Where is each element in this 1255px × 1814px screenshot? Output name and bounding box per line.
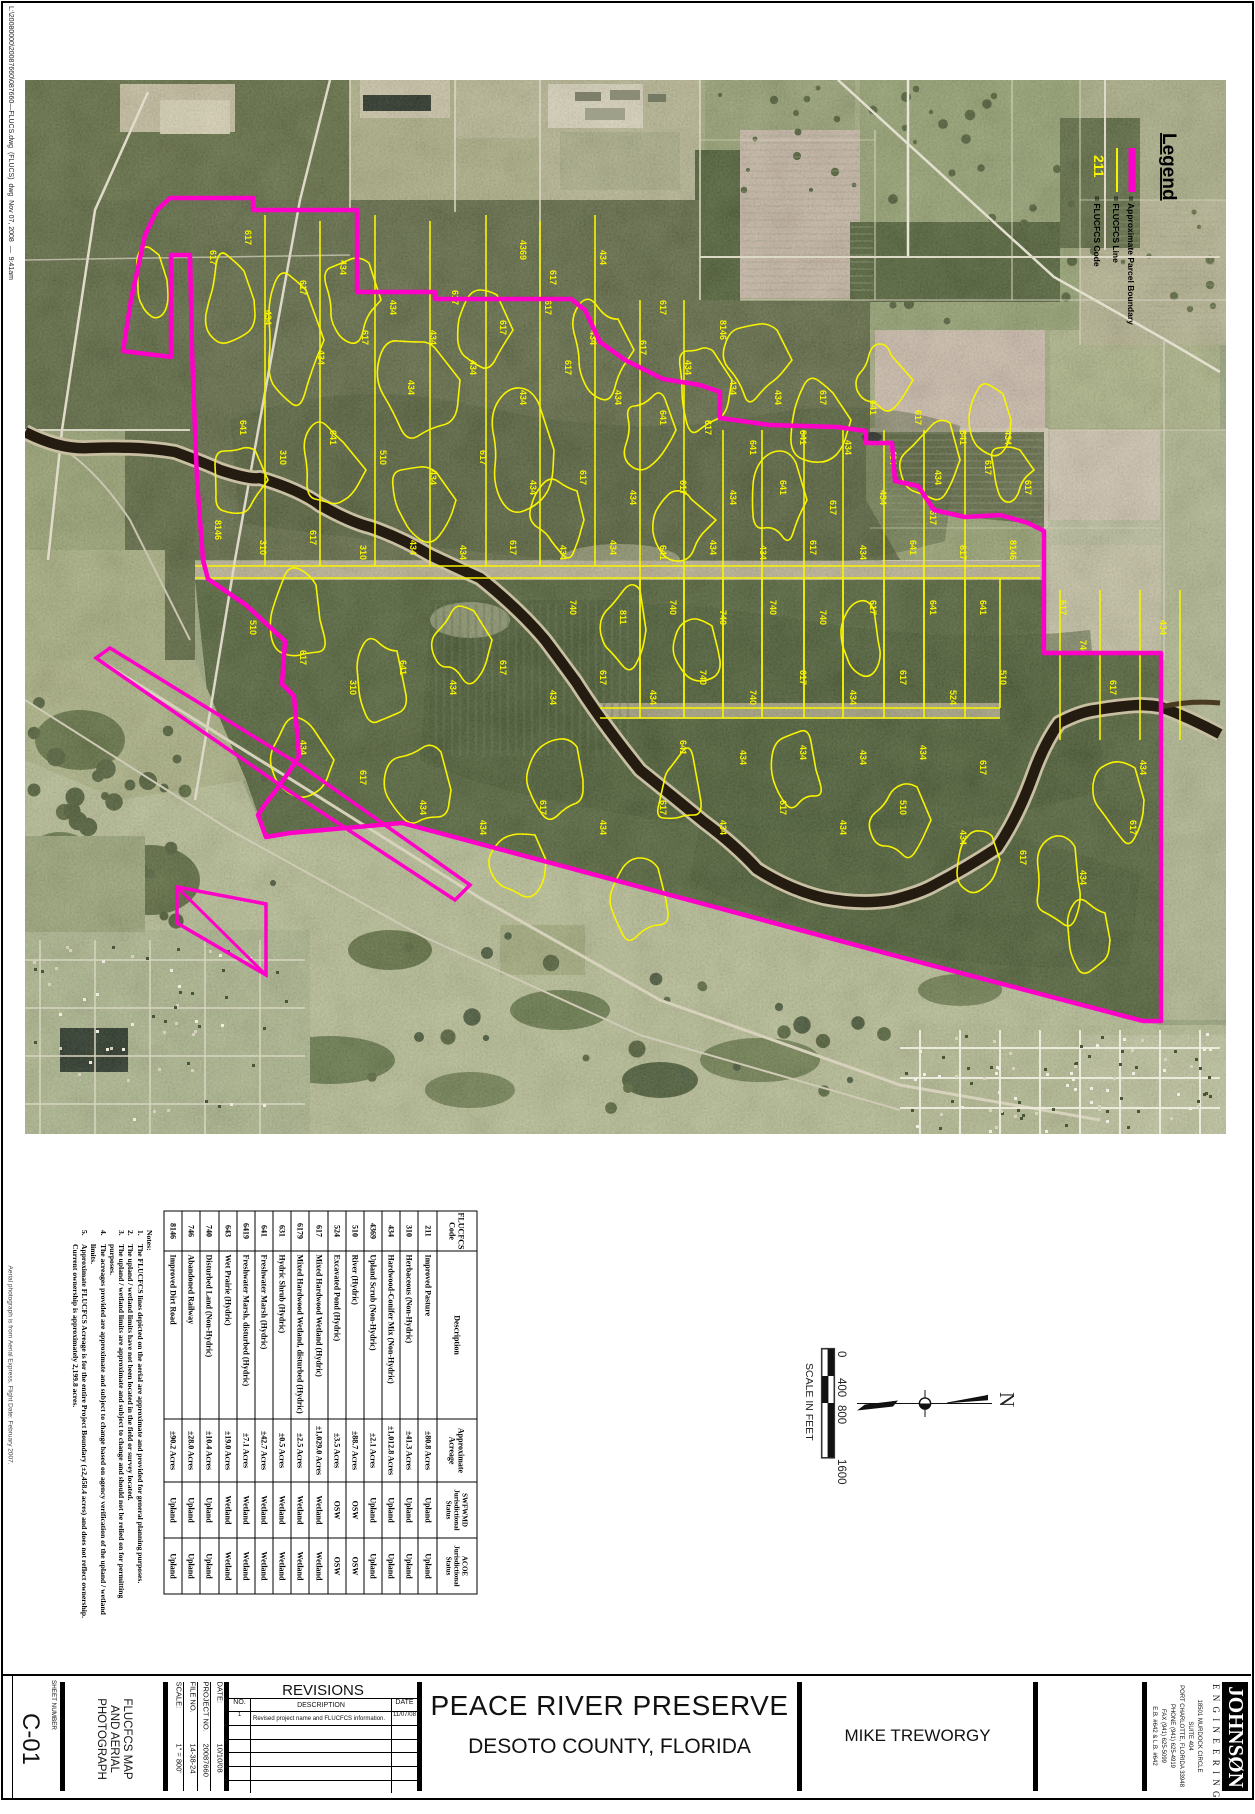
svg-text:617: 617 [298, 280, 308, 295]
svg-text:434: 434 [958, 830, 968, 845]
svg-text:617: 617 [958, 545, 968, 560]
svg-text:434: 434 [548, 690, 558, 705]
svg-text:434: 434 [1138, 760, 1148, 775]
svg-text:310: 310 [348, 680, 358, 695]
svg-text:617: 617 [360, 330, 370, 345]
svg-text:617: 617 [808, 540, 818, 555]
svg-text:524: 524 [948, 690, 958, 705]
svg-text:617: 617 [243, 230, 253, 245]
svg-text:N: N [995, 1392, 1019, 1407]
svg-text:617: 617 [1058, 600, 1068, 615]
svg-text:434: 434 [738, 750, 748, 765]
svg-text:434: 434 [418, 800, 428, 815]
svg-text:434: 434 [338, 260, 348, 275]
svg-text:617: 617 [1023, 480, 1033, 495]
svg-text:617: 617 [1108, 680, 1118, 695]
svg-text:434: 434 [1158, 620, 1168, 635]
svg-text:434: 434 [758, 545, 768, 560]
svg-text:434: 434 [628, 490, 638, 505]
svg-text:617: 617 [1018, 850, 1028, 865]
svg-text:= FLUCFCS Code: = FLUCFCS Code [1092, 196, 1102, 267]
svg-text:617: 617 [308, 530, 318, 545]
svg-text:SCALE IN FEET: SCALE IN FEET [803, 1363, 815, 1441]
svg-text:617: 617 [778, 800, 788, 815]
svg-text:0: 0 [835, 1351, 847, 1357]
svg-text:617: 617 [578, 470, 588, 485]
svg-text:310: 310 [258, 540, 268, 555]
svg-text:617: 617 [818, 390, 828, 405]
svg-text:1600: 1600 [835, 1459, 847, 1485]
svg-text:434: 434 [428, 470, 438, 485]
svg-text:434: 434 [773, 390, 783, 405]
svg-text:434: 434 [263, 310, 273, 325]
svg-text:434: 434 [598, 820, 608, 835]
svg-text:434: 434 [558, 545, 568, 560]
svg-text:434: 434 [843, 440, 853, 455]
svg-text:434: 434 [613, 390, 623, 405]
svg-text:510: 510 [248, 620, 258, 635]
svg-text:617: 617 [498, 660, 508, 675]
svg-text:617: 617 [828, 500, 838, 515]
svg-text:617: 617 [498, 320, 508, 335]
svg-text:617: 617 [538, 800, 548, 815]
svg-text:310: 310 [358, 545, 368, 560]
svg-text:434: 434 [718, 820, 728, 835]
svg-text:617: 617 [798, 670, 808, 685]
svg-text:4369: 4369 [518, 240, 528, 260]
svg-text:= FLUCFCS Line: = FLUCFCS Line [1111, 196, 1121, 263]
svg-text:740: 740 [718, 610, 728, 625]
svg-text:434: 434 [918, 745, 928, 760]
svg-text:641: 641 [868, 400, 878, 415]
svg-text:434: 434 [1078, 870, 1088, 885]
svg-text:800: 800 [835, 1405, 847, 1424]
svg-text:434: 434 [728, 490, 738, 505]
svg-text:434: 434 [478, 820, 488, 835]
svg-text:617: 617 [868, 600, 878, 615]
svg-text:434: 434 [848, 690, 858, 705]
svg-text:641: 641 [958, 430, 968, 445]
svg-text:617: 617 [563, 360, 573, 375]
svg-text:434: 434 [858, 545, 868, 560]
svg-text:811: 811 [618, 610, 628, 625]
svg-text:641: 641 [908, 540, 918, 555]
svg-text:641: 641 [928, 600, 938, 615]
svg-text:434: 434 [878, 490, 888, 505]
svg-text:434: 434 [388, 300, 398, 315]
svg-text:434: 434 [528, 480, 538, 495]
svg-text:434: 434 [608, 540, 618, 555]
svg-text:= Approximate Parcel Boundary: = Approximate Parcel Boundary [1126, 196, 1136, 325]
svg-text:641: 641 [658, 545, 668, 560]
svg-text:617: 617 [208, 250, 218, 265]
svg-text:434: 434 [408, 540, 418, 555]
svg-text:434: 434 [933, 470, 943, 485]
svg-text:617: 617 [898, 670, 908, 685]
svg-text:641: 641 [748, 440, 758, 455]
svg-text:617: 617 [913, 410, 923, 425]
svg-text:740: 740 [668, 600, 678, 615]
svg-text:8146: 8146 [718, 320, 728, 340]
svg-text:617: 617 [658, 800, 668, 815]
svg-text:434: 434 [598, 250, 608, 265]
svg-text:434: 434 [468, 360, 478, 375]
svg-text:510: 510 [898, 800, 908, 815]
svg-text:434: 434 [458, 545, 468, 560]
svg-text:434: 434 [708, 540, 718, 555]
svg-text:434: 434 [518, 390, 528, 405]
svg-text:510: 510 [378, 450, 388, 465]
svg-text:740: 740 [748, 690, 758, 705]
svg-text:617: 617 [658, 300, 668, 315]
svg-text:434: 434 [648, 690, 658, 705]
svg-text:8146: 8146 [1008, 540, 1018, 560]
svg-text:434: 434 [683, 360, 693, 375]
svg-text:641: 641 [678, 740, 688, 755]
svg-text:740: 740 [768, 600, 778, 615]
svg-text:Legend: Legend [1158, 133, 1179, 201]
svg-text:434: 434 [428, 330, 438, 345]
svg-text:211: 211 [1091, 155, 1107, 178]
svg-text:434: 434 [798, 745, 808, 760]
svg-text:434: 434 [448, 680, 458, 695]
svg-text:434: 434 [316, 350, 326, 365]
svg-text:617: 617 [548, 270, 558, 285]
svg-text:617: 617 [983, 460, 993, 475]
svg-text:617: 617 [1128, 820, 1138, 835]
svg-text:740: 740 [698, 670, 708, 685]
svg-text:617: 617 [703, 420, 713, 435]
svg-text:617: 617 [543, 300, 553, 315]
svg-text:641: 641 [238, 420, 248, 435]
svg-text:617: 617 [978, 760, 988, 775]
svg-text:617: 617 [678, 480, 688, 495]
svg-text:434: 434 [406, 380, 416, 395]
svg-text:617: 617 [598, 670, 608, 685]
svg-text:617: 617 [358, 770, 368, 785]
svg-text:641: 641 [658, 410, 668, 425]
svg-text:617: 617 [638, 340, 648, 355]
svg-text:641: 641 [978, 600, 988, 615]
svg-text:641: 641 [328, 430, 338, 445]
svg-text:617: 617 [298, 650, 308, 665]
svg-text:641: 641 [798, 430, 808, 445]
svg-text:434: 434 [858, 750, 868, 765]
svg-text:641: 641 [398, 660, 408, 675]
svg-text:8146: 8146 [213, 520, 223, 540]
svg-text:434: 434 [838, 820, 848, 835]
svg-text:434: 434 [728, 380, 738, 395]
svg-text:641: 641 [778, 480, 788, 495]
svg-text:617: 617 [508, 540, 518, 555]
svg-text:434: 434 [1003, 430, 1013, 445]
svg-text:617: 617 [478, 450, 488, 465]
svg-text:400: 400 [835, 1378, 847, 1397]
svg-text:740: 740 [818, 610, 828, 625]
svg-text:510: 510 [998, 670, 1008, 685]
svg-text:740: 740 [568, 600, 578, 615]
svg-text:310: 310 [278, 450, 288, 465]
